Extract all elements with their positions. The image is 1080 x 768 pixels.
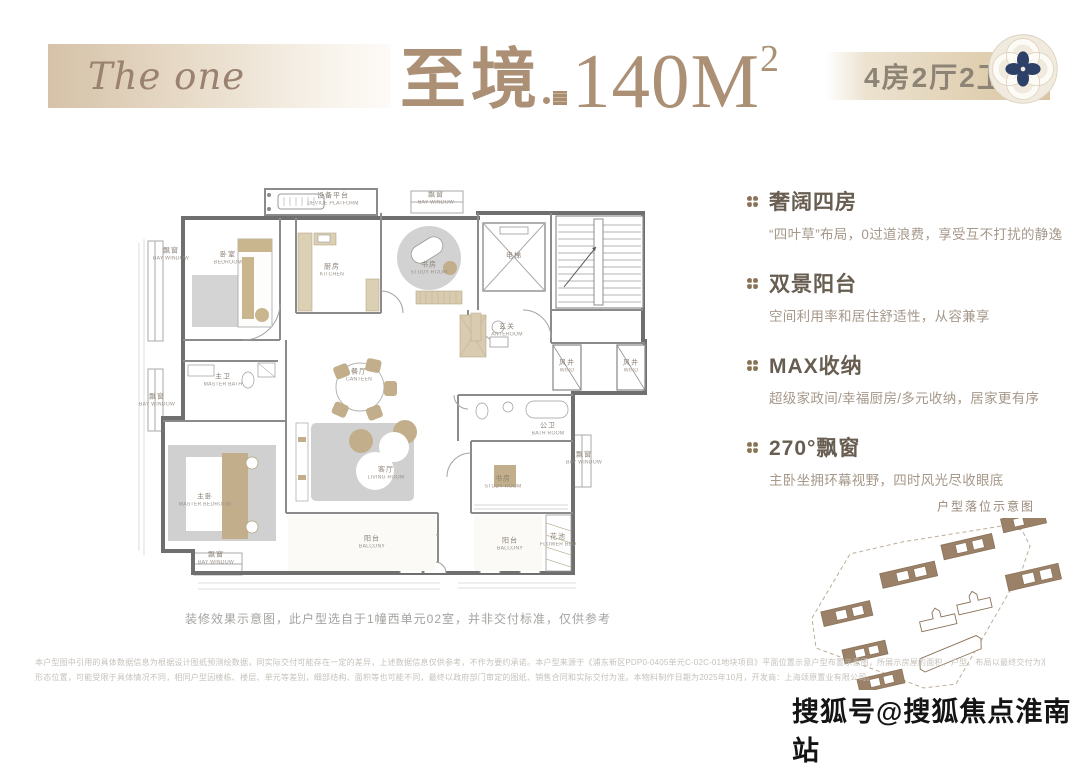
room-label-en: BAY WINDOW xyxy=(153,256,189,263)
room-label-en: STUDY ROOM xyxy=(484,484,521,491)
plan-caption: 装修效果示意图，此户型选自于1幢西单元02室，并非交付标准，仅供参考 xyxy=(128,610,668,627)
room-label-study-bottom: 书房 STUDY ROOM xyxy=(481,475,525,492)
siteplan-label: 户型落位示意图 xyxy=(937,498,1035,515)
room-label-zh: 阳台 xyxy=(495,537,526,546)
room-label-zh: 客厅 xyxy=(364,466,407,475)
room-label-zh: 飘窗 xyxy=(415,191,457,200)
room-label-zh: 卧室 xyxy=(211,251,244,260)
room-label-zh: 花池 xyxy=(537,533,580,542)
feature-list: 奢阔四房 “四叶草”布局，0过道浪费，享受互不打扰的静逸 双景阳台 空间利用率和… xyxy=(746,186,1076,514)
room-label-zh: 书房 xyxy=(407,261,451,270)
feature-head-3: MAX收纳 xyxy=(746,350,1076,380)
disclaimer-line-1: 本户型图中引用的具体数据信息为根据设计图纸预测绘数据，同实际交付可能存在一定的差… xyxy=(35,657,1045,668)
feature-head-4: 270°飘窗 xyxy=(746,432,1076,462)
room-label-elevator: 电梯 xyxy=(506,251,522,260)
room-label-zh: 飘窗 xyxy=(136,393,178,402)
room-label-en: WIND xyxy=(624,368,639,375)
page-title-area-value: 140M xyxy=(572,38,760,124)
room-label-canteen: 餐厅 CANTEEN xyxy=(344,368,375,385)
area-seal-icon xyxy=(553,91,567,105)
clover-bullet-icon xyxy=(746,441,759,454)
room-label-bay-window-tl: 飘窗 BAY WINDOW xyxy=(150,247,192,264)
room-label-device-platform: 设备平台 DEVICE PLATFORM xyxy=(303,192,364,209)
feature-desc: 主卧坐拥环幕视野，四时风光尽收眼底 xyxy=(769,469,1076,489)
feature-title: 270°飘窗 xyxy=(769,432,860,462)
room-label-en: BEDROOM xyxy=(214,260,242,267)
floor-plan: 设备平台 DEVICE PLATFORM 飘窗 BAY WINDOW 卧室 BE… xyxy=(128,183,668,607)
feature-title: 双景阳台 xyxy=(769,268,857,298)
room-label-zh: 飘窗 xyxy=(195,551,237,560)
page-title-area: 140M xyxy=(572,48,760,114)
room-label-zh: 阳台 xyxy=(357,535,388,544)
feature-head-2: 双景阳台 xyxy=(746,268,1076,298)
title-dot-icon xyxy=(543,97,550,104)
room-label-kitchen: 厨房 KITCHEN xyxy=(318,263,346,280)
feature-head-1: 奢阔四房 xyxy=(746,186,1076,216)
feature-title: 奢阔四房 xyxy=(769,186,857,216)
room-label-anteroom: 玄关 ANTEROOM xyxy=(488,323,525,340)
room-label-en: BALCONY xyxy=(359,544,385,551)
room-label-zh: 玄关 xyxy=(488,323,525,332)
room-label-zh: 电梯 xyxy=(506,251,522,260)
room-label-master-bath: 主卫 MASTER BATH xyxy=(200,373,246,390)
bath-room-fixtures xyxy=(476,401,568,419)
watermark-text: 搜狐号@搜狐焦点淮南站 xyxy=(792,690,1080,768)
room-label-en: BAY WINDOW xyxy=(418,200,454,207)
page-title-zh: 至境 xyxy=(400,48,542,114)
room-label-bay-window-right: 飘窗 BAY WINDOW xyxy=(563,451,605,468)
feature-item-2: 双景阳台 空间利用率和居住舒适性，从容兼享 xyxy=(746,268,1076,325)
feature-item-1: 奢阔四房 “四叶草”布局，0过道浪费，享受互不打扰的静逸 xyxy=(746,186,1076,243)
room-label-en: MASTER BATH xyxy=(204,382,243,389)
room-label-zh: 飘窗 xyxy=(150,247,192,256)
page-title-area-sup: 2 xyxy=(760,40,779,78)
room-label-wind-2: 风井 WIND xyxy=(622,359,639,376)
room-label-en: KITCHEN xyxy=(320,272,344,279)
room-label-en: LIVING ROOM xyxy=(368,475,405,482)
room-label-zh: 厨房 xyxy=(318,263,346,272)
room-label-en: ANTEROOM xyxy=(491,332,523,339)
room-label-en: BATH ROOM xyxy=(532,431,565,438)
living-room-furniture xyxy=(296,420,417,501)
room-label-zh: 风井 xyxy=(622,359,639,368)
room-label-zh: 主卧 xyxy=(174,493,236,502)
room-label-balcony-right: 阳台 BALCONY xyxy=(495,537,526,554)
feature-item-3: MAX收纳 超级家政间/幸福厨房/多元收纳，居家更有序 xyxy=(746,350,1076,407)
room-label-balcony-center: 阳台 BALCONY xyxy=(357,535,388,552)
disclaimer-line-2: 形态位置，可能受限于具体情况不同，相同户型因楼栋、楼层、单元等差别，细部结构、面… xyxy=(35,672,1045,683)
feature-desc: 超级家政间/幸福厨房/多元收纳，居家更有序 xyxy=(769,387,1076,407)
clover-bullet-icon xyxy=(746,195,759,208)
room-label-en: BAY WINDOW xyxy=(139,402,175,409)
feature-item-4: 270°飘窗 主卧坐拥环幕视野，四时风光尽收眼底 xyxy=(746,432,1076,489)
room-label-zh: 主卫 xyxy=(200,373,246,382)
room-label-zh: 飘窗 xyxy=(563,451,605,460)
feature-desc: 空间利用率和居住舒适性，从容兼享 xyxy=(769,305,1076,325)
room-label-bay-window-top: 飘窗 BAY WINDOW xyxy=(415,191,457,208)
room-label-en: BAY WINDOW xyxy=(198,560,234,567)
balcony-floors xyxy=(288,515,571,571)
room-label-en: CANTEEN xyxy=(346,377,372,384)
room-label-en: MASTER BEDROOM xyxy=(179,502,232,509)
brand-banner: The one xyxy=(48,44,391,108)
feature-title: MAX收纳 xyxy=(769,350,863,380)
room-label-bath-room: 公卫 BATH ROOM xyxy=(529,422,568,439)
feature-desc: “四叶草”布局，0过道浪费，享受互不打扰的静逸 xyxy=(769,223,1076,243)
room-label-zh: 餐厅 xyxy=(344,368,375,377)
clover-bullet-icon xyxy=(746,277,759,290)
floor-plan-drawing xyxy=(128,183,668,607)
room-label-zh: 公卫 xyxy=(529,422,568,431)
room-label-en: STUDY ROOM xyxy=(410,270,447,277)
room-label-bay-window-bottom: 飘窗 BAY WINDOW xyxy=(195,551,237,568)
room-label-master-bedroom: 主卧 MASTER BEDROOM xyxy=(174,493,236,510)
room-label-en: BALCONY xyxy=(497,546,523,553)
room-label-bedroom: 卧室 BEDROOM xyxy=(211,251,244,268)
clover-bullet-icon xyxy=(746,359,759,372)
room-label-en: DEVICE PLATFORM xyxy=(307,201,359,208)
page-title: 至境 140M 2 xyxy=(400,30,779,114)
room-label-bay-window-left: 飘窗 BAY WINDOW xyxy=(136,393,178,410)
room-label-study-top: 书房 STUDY ROOM xyxy=(407,261,451,278)
room-label-zh: 书房 xyxy=(481,475,525,484)
rose-knot-clover-emblem-icon xyxy=(986,32,1060,106)
stairwell xyxy=(556,216,643,308)
room-label-en: FLOWER BED xyxy=(540,542,576,549)
room-label-en: WIND xyxy=(560,368,575,375)
brand-logo-text: The one xyxy=(88,55,245,98)
room-label-flower-bed: 花池 FLOWER BED xyxy=(537,533,580,550)
room-label-living-room: 客厅 LIVING ROOM xyxy=(364,466,407,483)
room-label-wind-1: 风井 WIND xyxy=(558,359,575,376)
room-label-en: BAY WINDOW xyxy=(566,460,602,467)
room-label-zh: 风井 xyxy=(558,359,575,368)
room-label-zh: 设备平台 xyxy=(303,192,364,201)
